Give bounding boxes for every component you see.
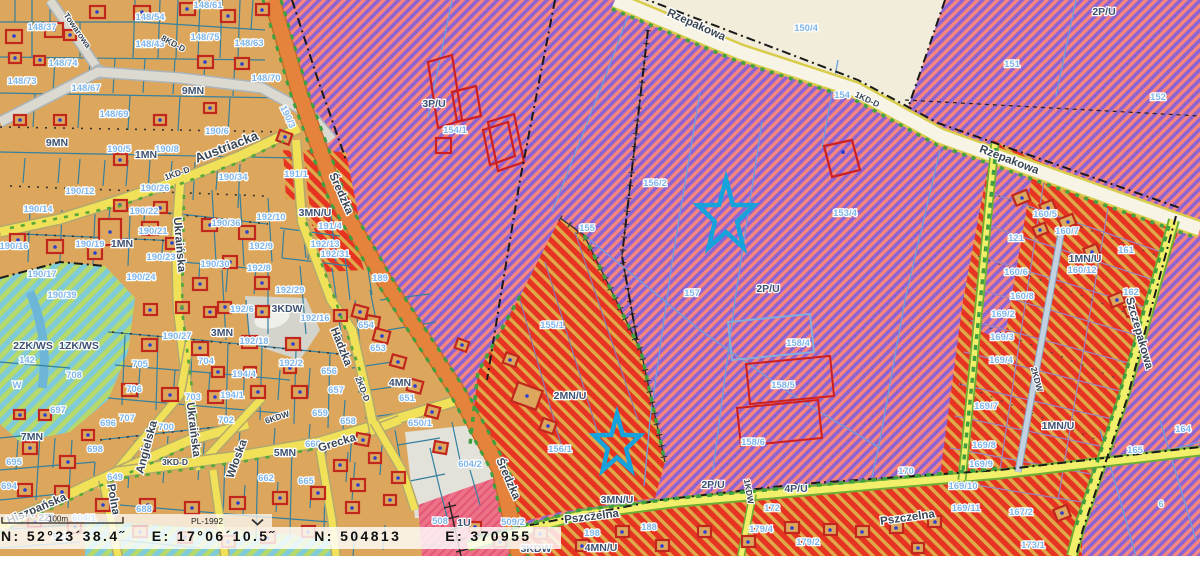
svg-text:702: 702 <box>218 415 234 426</box>
svg-text:665: 665 <box>298 476 315 487</box>
svg-text:190/23: 190/23 <box>146 252 175 263</box>
svg-text:192/31: 192/31 <box>320 249 350 260</box>
svg-text:190/5: 190/5 <box>107 144 131 155</box>
svg-text:192/16: 192/16 <box>300 313 329 324</box>
svg-text:198: 198 <box>584 528 600 539</box>
svg-text:160/8: 160/8 <box>1010 291 1034 302</box>
svg-text:160/5: 160/5 <box>1033 209 1057 220</box>
svg-text:169/9: 169/9 <box>969 459 993 470</box>
svg-text:192/2: 192/2 <box>279 358 303 369</box>
svg-text:190/17: 190/17 <box>27 269 56 280</box>
svg-text:150/4: 150/4 <box>794 23 818 34</box>
svg-text:653: 653 <box>370 343 386 354</box>
svg-text:154: 154 <box>834 90 851 101</box>
svg-text:192/10: 192/10 <box>256 212 285 223</box>
svg-text:179/4: 179/4 <box>749 524 773 535</box>
svg-text:662: 662 <box>258 473 274 484</box>
svg-text:651: 651 <box>399 393 416 404</box>
svg-text:152: 152 <box>1150 92 1166 103</box>
svg-text:4MN: 4MN <box>389 377 411 389</box>
svg-text:160/12: 160/12 <box>1067 265 1096 276</box>
svg-text:6: 6 <box>1158 499 1163 510</box>
svg-text:3MN/U: 3MN/U <box>299 207 332 219</box>
svg-text:707: 707 <box>119 413 135 424</box>
svg-text:148/69: 148/69 <box>99 109 128 120</box>
svg-text:659: 659 <box>312 408 328 419</box>
svg-text:156/1: 156/1 <box>548 444 572 455</box>
svg-text:706: 706 <box>126 384 142 395</box>
svg-text:N: 52°23´38.4˝ E: 17°06´10.: N: 52°23´38.4˝ E: 17°06´10.5˝ N: 504813 … <box>1 528 532 544</box>
svg-text:7MN: 7MN <box>21 431 43 443</box>
svg-text:4P/U: 4P/U <box>784 483 807 495</box>
svg-text:190/16: 190/16 <box>0 241 29 252</box>
svg-text:190/22: 190/22 <box>129 206 158 217</box>
svg-text:155/1: 155/1 <box>540 320 564 331</box>
svg-text:167/2: 167/2 <box>1009 507 1033 518</box>
svg-text:190/34: 190/34 <box>218 172 248 183</box>
svg-text:161: 161 <box>1118 245 1135 256</box>
svg-text:157: 157 <box>684 288 700 299</box>
svg-text:158/5: 158/5 <box>771 380 795 391</box>
svg-text:154/1: 154/1 <box>443 125 467 136</box>
svg-text:2P/U: 2P/U <box>756 283 779 295</box>
svg-text:172: 172 <box>764 503 780 514</box>
svg-text:189: 189 <box>372 273 388 284</box>
svg-text:153/4: 153/4 <box>833 208 857 219</box>
svg-text:192/29: 192/29 <box>275 285 304 296</box>
svg-text:694: 694 <box>1 481 18 492</box>
svg-text:164: 164 <box>1175 424 1192 435</box>
svg-text:190/12: 190/12 <box>65 186 94 197</box>
svg-text:148/67: 148/67 <box>71 83 100 94</box>
svg-text:656: 656 <box>321 366 337 377</box>
svg-text:650/1: 650/1 <box>408 418 432 429</box>
svg-text:9MN: 9MN <box>46 137 68 149</box>
svg-text:PL-1992: PL-1992 <box>191 516 223 526</box>
svg-text:156/2: 156/2 <box>643 178 667 189</box>
svg-text:190/36: 190/36 <box>211 218 240 229</box>
svg-text:657: 657 <box>328 385 344 396</box>
svg-text:191/1: 191/1 <box>284 169 308 180</box>
svg-text:192/18: 192/18 <box>239 336 268 347</box>
svg-text:148/54: 148/54 <box>135 12 165 23</box>
svg-text:3KD-D: 3KD-D <box>162 457 188 467</box>
svg-text:705: 705 <box>132 359 149 370</box>
svg-text:649: 649 <box>107 472 123 483</box>
svg-text:1MN: 1MN <box>111 238 133 250</box>
svg-text:5MN: 5MN <box>274 447 296 459</box>
svg-text:148/63: 148/63 <box>234 38 263 49</box>
svg-text:509/2: 509/2 <box>501 517 525 528</box>
svg-text:2P/U: 2P/U <box>701 479 724 491</box>
svg-text:508: 508 <box>432 516 448 527</box>
svg-text:696: 696 <box>100 418 116 429</box>
svg-text:700: 700 <box>158 422 174 433</box>
svg-text:160/7: 160/7 <box>1055 226 1079 237</box>
svg-text:148/75: 148/75 <box>190 32 220 43</box>
svg-text:148/61: 148/61 <box>193 0 223 11</box>
svg-text:160/6: 160/6 <box>1004 267 1028 278</box>
svg-text:190/39: 190/39 <box>47 290 76 301</box>
svg-text:169/3: 169/3 <box>990 332 1014 343</box>
svg-text:158/4: 158/4 <box>786 338 810 349</box>
svg-text:121: 121 <box>1008 233 1025 244</box>
svg-text:173/1: 173/1 <box>1021 540 1045 551</box>
svg-text:148/73: 148/73 <box>7 76 36 87</box>
svg-text:604/2: 604/2 <box>458 459 482 470</box>
svg-text:148/70: 148/70 <box>251 73 280 84</box>
svg-text:100m: 100m <box>48 515 68 524</box>
svg-text:658: 658 <box>340 416 356 427</box>
svg-text:169/10: 169/10 <box>948 481 977 492</box>
svg-text:151: 151 <box>1004 59 1021 70</box>
svg-text:3KDW: 3KDW <box>272 303 303 315</box>
svg-text:190/14: 190/14 <box>23 204 53 215</box>
svg-text:158/6: 158/6 <box>741 437 765 448</box>
svg-text:179/2: 179/2 <box>796 537 820 548</box>
svg-text:708: 708 <box>66 370 82 381</box>
svg-text:155: 155 <box>579 223 596 234</box>
svg-text:654: 654 <box>358 320 375 331</box>
svg-text:1MN/U: 1MN/U <box>1069 253 1102 265</box>
svg-text:688: 688 <box>136 504 152 515</box>
svg-text:2MN/U: 2MN/U <box>554 390 587 402</box>
svg-text:165: 165 <box>1127 445 1144 456</box>
svg-text:190/24: 190/24 <box>126 272 156 283</box>
svg-text:169/11: 169/11 <box>952 503 981 514</box>
svg-text:190/27: 190/27 <box>162 331 191 342</box>
svg-text:190/21: 190/21 <box>138 226 168 237</box>
svg-text:3MN/U: 3MN/U <box>601 494 634 506</box>
svg-text:192/9: 192/9 <box>249 241 273 252</box>
svg-text:698: 698 <box>87 444 103 455</box>
svg-text:1MN: 1MN <box>135 149 157 161</box>
svg-text:142: 142 <box>19 355 35 366</box>
svg-text:190/19: 190/19 <box>75 239 104 250</box>
svg-text:1ZK/WS: 1ZK/WS <box>59 340 99 352</box>
svg-text:3MN: 3MN <box>211 327 233 339</box>
svg-text:169/7: 169/7 <box>974 401 998 412</box>
svg-text:2ZK/WS: 2ZK/WS <box>13 340 53 352</box>
svg-text:190/26: 190/26 <box>140 183 169 194</box>
svg-text:169/4: 169/4 <box>989 355 1013 366</box>
svg-text:148/37: 148/37 <box>27 22 56 33</box>
svg-text:191/4: 191/4 <box>318 221 342 232</box>
svg-text:2P/U: 2P/U <box>1092 6 1115 18</box>
svg-text:169/8: 169/8 <box>972 440 996 451</box>
svg-text:704: 704 <box>198 356 215 367</box>
svg-text:170: 170 <box>898 466 914 477</box>
svg-text:188: 188 <box>641 522 657 533</box>
svg-text:169/2: 169/2 <box>991 309 1015 320</box>
svg-text:W: W <box>13 380 22 391</box>
svg-text:190/30: 190/30 <box>200 259 229 270</box>
svg-text:148/74: 148/74 <box>48 58 78 69</box>
svg-text:190/6: 190/6 <box>205 126 229 137</box>
svg-text:3P/U: 3P/U <box>422 98 445 110</box>
svg-text:194/4: 194/4 <box>232 369 256 380</box>
svg-text:190/8: 190/8 <box>155 144 179 155</box>
svg-text:1MN/U: 1MN/U <box>1042 420 1075 432</box>
svg-text:192/6: 192/6 <box>230 304 254 315</box>
svg-text:697: 697 <box>50 405 66 416</box>
svg-text:695: 695 <box>6 457 23 468</box>
svg-text:4MN/U: 4MN/U <box>585 542 618 554</box>
svg-text:194/1: 194/1 <box>220 390 244 401</box>
svg-text:192/8: 192/8 <box>247 263 271 274</box>
svg-text:9MN: 9MN <box>182 85 204 97</box>
